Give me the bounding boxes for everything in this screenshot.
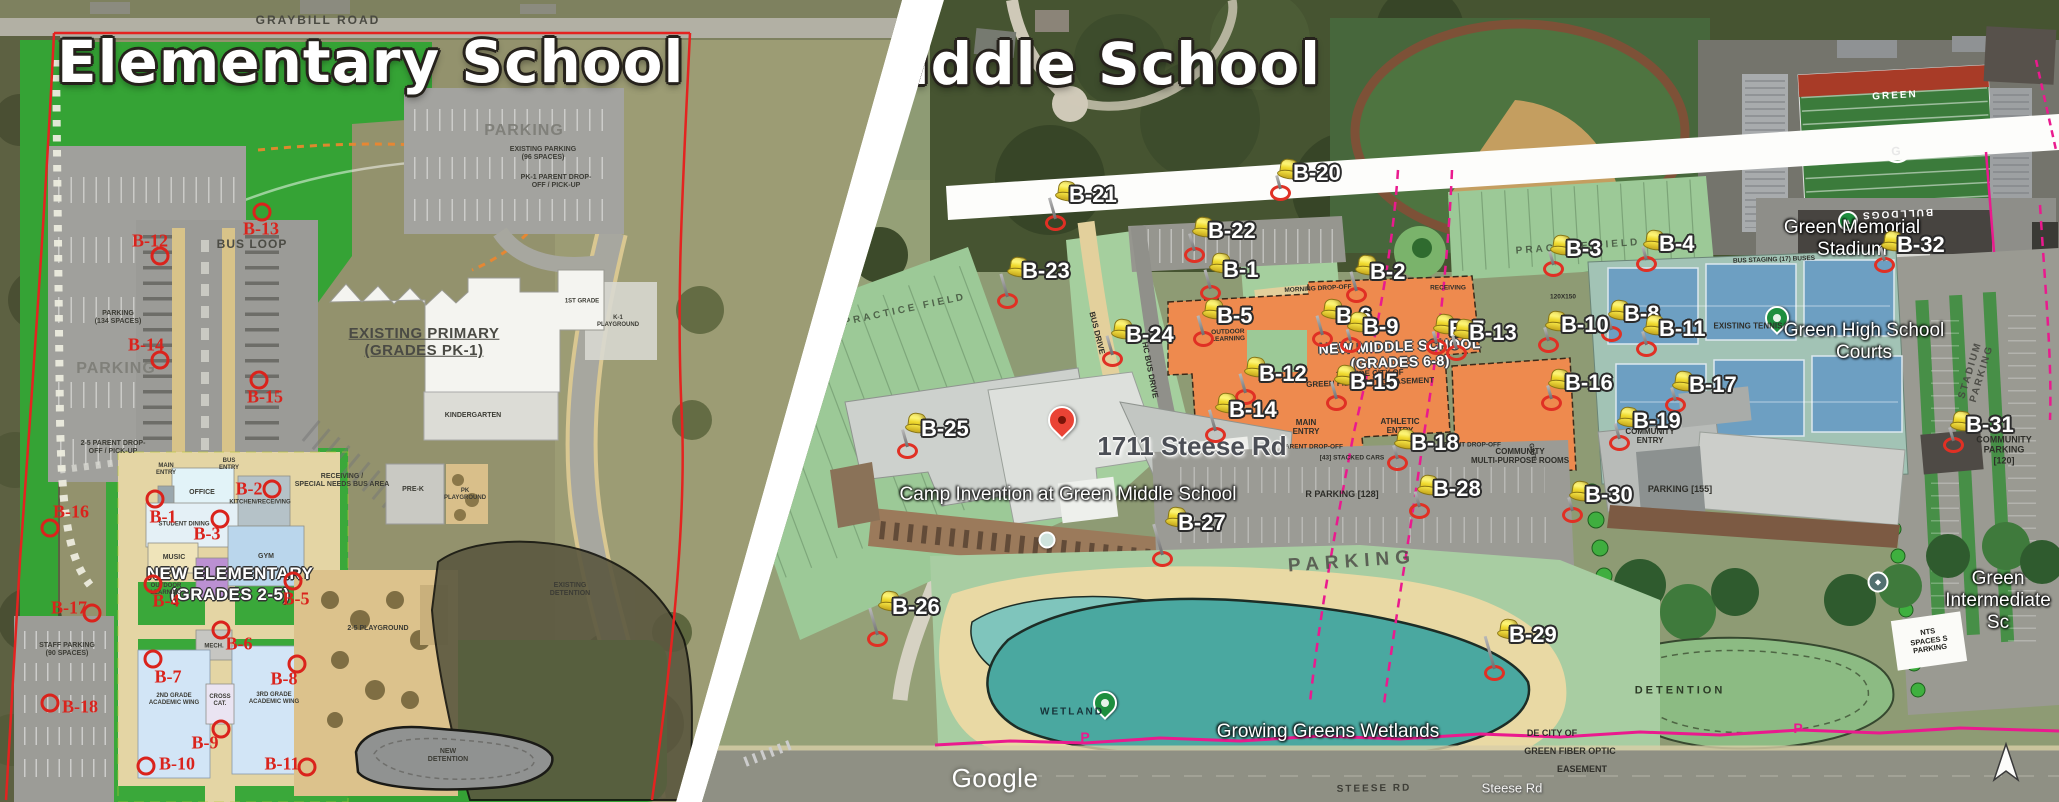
map-label: BUS ENTRY	[219, 458, 239, 472]
placemark-label-B-28: B-28	[1433, 476, 1481, 502]
placemark-label-B-14: B-14	[1229, 397, 1277, 423]
map-label: GREEN	[1872, 89, 1918, 103]
map-label: PARKING	[1287, 547, 1416, 578]
map-label: HC BUS DRIVE	[1140, 341, 1160, 399]
map-label: Green High School Courts	[1767, 320, 1962, 364]
map-label: P	[1793, 720, 1802, 736]
map-label: COMMUNITY PARKING [120]	[1976, 434, 2032, 465]
marker-label-B-5: B-5	[283, 589, 310, 610]
map-label: MAIN ENTRY	[1293, 418, 1320, 436]
placemark-label-B-25: B-25	[921, 416, 969, 442]
placemark-label-B-2: B-2	[1370, 259, 1405, 285]
placemark-label-B-13: B-13	[1469, 320, 1517, 346]
map-label: 120X150	[1550, 293, 1576, 300]
map-label: EXISTING DETENTION	[550, 582, 590, 598]
placemark-label-B-17: B-17	[1689, 372, 1737, 398]
marker-label-B-16: B-16	[53, 502, 89, 523]
middle-school-title: Middle School	[851, 30, 1321, 98]
map-label: STEESE RD	[1337, 783, 1412, 796]
map-label: OUTDOOR LEARNING	[1211, 328, 1245, 344]
map-label: PRACTICE FIELD	[843, 291, 967, 328]
marker-ring-B-2	[263, 480, 282, 499]
placemark-label-B-5: B-5	[1217, 303, 1252, 329]
map-label: 1ST GRADE	[565, 299, 599, 306]
map-label: RECEIVING / SPECIAL NEEDS BUS AREA	[295, 473, 390, 489]
map-label: (GRADES 2-5)	[170, 585, 289, 605]
map-label: PK-1 PARENT DROP- OFF / PICK-UP	[521, 174, 592, 190]
map-label: Google	[952, 764, 1039, 794]
map-label: K-1 PLAYGROUND	[597, 315, 639, 329]
marker-label-B-4: B-4	[153, 591, 180, 612]
marker-label-B-15: B-15	[247, 387, 283, 408]
placemark-label-B-22: B-22	[1208, 218, 1256, 244]
map-label: DETENTION	[1635, 685, 1726, 698]
marker-label-B-13: B-13	[243, 219, 279, 240]
intermediate-school-poi-icon[interactable]: ◆	[1868, 572, 1889, 593]
placemark-label-B-32: B-32	[1897, 232, 1945, 258]
elementary-title: Elementary School	[57, 28, 684, 96]
placemark-label-B-27: B-27	[1178, 510, 1226, 536]
placemark-label-B-21: B-21	[1069, 182, 1117, 208]
map-label: EASEMENT	[1557, 764, 1607, 774]
map-label: 2ND GRADE ACADEMIC WING	[149, 693, 199, 707]
placemark-label-B-19: B-19	[1633, 408, 1681, 434]
map-label: PARKING	[76, 360, 156, 378]
placemark-label-B-20: B-20	[1293, 160, 1341, 186]
map-label: Green Intermediate Sc	[1945, 568, 2051, 634]
map-label: R PARKING [128]	[1305, 489, 1378, 499]
map-label: COMMUNITY MULTI-PURPOSE ROOMS	[1471, 447, 1569, 465]
map-label: P	[1080, 729, 1089, 745]
map-label: BUS LOOP	[217, 238, 288, 252]
map-label: PRE-K	[402, 486, 424, 494]
map-label: Growing Greens Wetlands	[1217, 721, 1439, 743]
placemark-label-B-4: B-4	[1659, 231, 1694, 257]
map-label: G	[1891, 145, 1901, 159]
screenshot-root: Elementary School GRAYBILL ROADPARKINGEX…	[0, 0, 2059, 802]
placemark-label-B-18: B-18	[1411, 430, 1459, 456]
marker-label-B-2: B-2	[236, 479, 263, 500]
placemark-label-B-31: B-31	[1966, 412, 2014, 438]
map-label: KINDERGARTEN	[445, 412, 501, 420]
map-label: 3RD GRADE ACADEMIC WING	[249, 692, 299, 706]
marker-ring-B-11	[298, 758, 317, 777]
map-label: 1711 Steese Rd	[1097, 432, 1286, 462]
marker-ring-B-10	[137, 757, 156, 776]
marker-label-B-1: B-1	[150, 507, 177, 528]
map-label: MAIN ENTRY	[156, 463, 176, 477]
map-label: GRAYBILL ROAD	[256, 14, 381, 28]
map-label: MORNING DROP-OFF	[1284, 284, 1351, 295]
map-label: EXISTING PRIMARY (GRADES PK-1)	[349, 325, 500, 360]
marker-label-B-10: B-10	[159, 754, 195, 775]
map-label: MECH.	[204, 644, 223, 651]
map-label: GREEN FIBER OPTIC	[1524, 746, 1616, 756]
marker-label-B-18: B-18	[62, 697, 98, 718]
map-label: 2-5 PLAYGROUND	[347, 625, 408, 633]
map-label: Steese Rd	[1482, 782, 1543, 797]
map-label: PARKING	[484, 122, 564, 140]
marker-label-B-11: B-11	[264, 754, 299, 775]
address-pin-icon[interactable]	[1048, 406, 1076, 434]
map-label: 2-5 PARENT DROP- OFF / PICK-UP	[81, 440, 146, 456]
map-label: PARKING (134 SPACES)	[95, 310, 142, 326]
map-label: PARKING [155]	[1648, 484, 1712, 494]
placemark-label-B-30: B-30	[1585, 482, 1633, 508]
placemark-label-B-1: B-1	[1223, 257, 1258, 283]
map-label: EXISTING PARKING (96 SPACES)	[510, 146, 576, 162]
placemark-label-B-24: B-24	[1126, 322, 1174, 348]
marker-label-B-17: B-17	[51, 598, 87, 619]
map-label: MUSIC	[163, 554, 186, 562]
placemark-label-B-26: B-26	[892, 594, 940, 620]
marker-label-B-7: B-7	[155, 667, 182, 688]
marker-label-B-8: B-8	[271, 669, 298, 690]
placemark-label-B-23: B-23	[1022, 258, 1070, 284]
map-label: [43] STACKED CARS	[1320, 454, 1385, 461]
map-label: BUS DRIVE	[1087, 311, 1106, 355]
pushpin-needle-icon	[1484, 636, 1496, 669]
placemark-label-B-11: B-11	[1659, 316, 1705, 342]
marker-label-B-12: B-12	[132, 231, 168, 252]
map-label: WETLAND	[1040, 706, 1104, 718]
placemark-label-B-10: B-10	[1561, 312, 1609, 338]
map-label: NTS SPACES S PARKING	[1909, 626, 1950, 657]
placemark-label-B-9: B-9	[1363, 314, 1398, 340]
marker-ring-B-18	[41, 694, 60, 713]
placemark-label-B-12: B-12	[1259, 361, 1307, 387]
placemark-label-B-15: B-15	[1350, 369, 1398, 395]
map-label: GYM	[258, 553, 274, 561]
map-label: CROSS CAT.	[209, 694, 230, 708]
map-label: NEW DETENTION	[428, 748, 468, 764]
placemark-label-B-3: B-3	[1566, 236, 1601, 262]
marker-label-B-14: B-14	[128, 335, 164, 356]
map-label: OFFICE	[189, 489, 215, 497]
map-label: RECEIVING	[1430, 284, 1466, 291]
placemark-label-B-16: B-16	[1565, 370, 1613, 396]
map-label: DE CITY OF	[1527, 728, 1577, 738]
map-label: PK PLAYGROUND	[444, 488, 486, 502]
marker-label-B-3: B-3	[194, 524, 221, 545]
map-label: STAFF PARKING (90 SPACES)	[39, 642, 95, 658]
map-label: PARENT DROP-OFF	[1281, 443, 1343, 450]
map-label: Camp Invention at Green Middle School	[900, 484, 1237, 506]
marker-label-B-6: B-6	[226, 634, 253, 655]
map-label: KITCHEN/RECEIVING	[229, 500, 290, 507]
marker-label-B-9: B-9	[192, 733, 219, 754]
camp-invention-poi-icon[interactable]	[1039, 532, 1056, 549]
placemark-label-B-29: B-29	[1509, 622, 1557, 648]
